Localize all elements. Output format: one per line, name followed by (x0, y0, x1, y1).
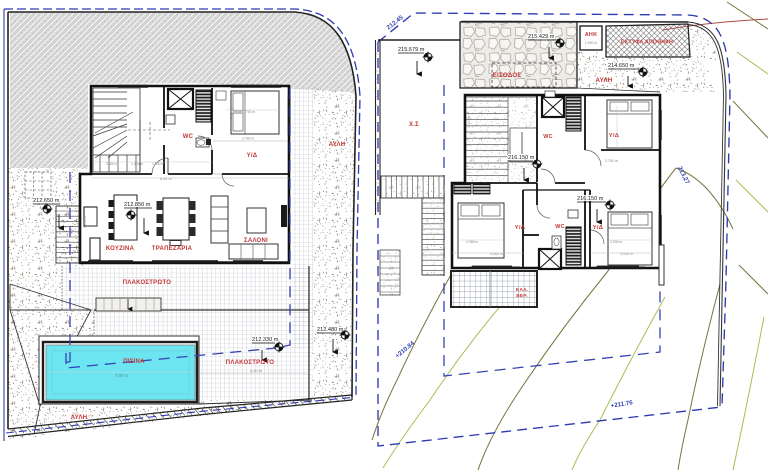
svg-text:WC: WC (183, 134, 194, 140)
svg-text:ΒΕΡ.: ΒΕΡ. (516, 293, 528, 299)
svg-text:4.150 m: 4.150 m (83, 216, 87, 228)
svg-text:213,27: 213,27 (676, 165, 691, 186)
svg-text:214.650 m: 214.650 m (608, 63, 635, 69)
svg-text:4.065 m: 4.065 m (490, 252, 503, 256)
svg-text:2.700 m: 2.700 m (243, 110, 255, 114)
svg-text:+210.84: +210.84 (394, 340, 416, 360)
svg-text:Υ/Δ: Υ/Δ (593, 225, 603, 231)
svg-text:ΑΥΛΗ: ΑΥΛΗ (71, 415, 88, 421)
svg-text:215.579 m: 215.579 m (398, 47, 425, 53)
svg-text:Υ/Δ: Υ/Δ (609, 133, 619, 139)
svg-text:ΑΥΛΗ: ΑΥΛΗ (595, 77, 612, 84)
svg-text:WC: WC (555, 224, 564, 230)
svg-text:1.000 m: 1.000 m (467, 116, 471, 128)
svg-text:1.300 m: 1.300 m (131, 162, 143, 166)
svg-text:ΠΛΑΚΟΣΤΡΩΤΟ: ΠΛΑΚΟΣΤΡΩΤΟ (226, 360, 275, 366)
svg-text:3.780 m: 3.780 m (242, 137, 254, 141)
svg-text:ΚΑΛ.: ΚΑΛ. (516, 287, 528, 293)
svg-text:212.650 m: 212.650 m (33, 198, 60, 204)
svg-text:3.45 m: 3.45 m (229, 108, 233, 120)
svg-text:8.93 m: 8.93 m (160, 177, 172, 181)
svg-text:Υ/Δ: Υ/Δ (247, 153, 258, 159)
svg-text:ΠΙΣΙΝΑ: ΠΙΣΙΝΑ (123, 359, 145, 365)
svg-text:1.900 m: 1.900 m (152, 162, 164, 166)
svg-text:212.330 m: 212.330 m (252, 337, 279, 343)
svg-text:2.700 m: 2.700 m (605, 159, 618, 163)
svg-text:7.00 m: 7.00 m (115, 373, 128, 378)
svg-text:ΣΑΛΟΝΙ: ΣΑΛΟΝΙ (244, 238, 268, 244)
svg-text:4.065 m: 4.065 m (466, 240, 478, 244)
svg-text:215.429 m: 215.429 m (528, 34, 555, 40)
svg-text:ΚΟΥΖΙΝΑ: ΚΟΥΖΙΝΑ (106, 246, 135, 252)
svg-text:+211.76: +211.76 (610, 399, 634, 409)
svg-text:ΕΙΣΟΔΟΣ: ΕΙΣΟΔΟΣ (493, 72, 522, 79)
svg-text:ΠΛΑΚΟΣΤΡΩΤΟ: ΠΛΑΚΟΣΤΡΩΤΟ (123, 280, 172, 286)
svg-text:Χ.Σ: Χ.Σ (409, 122, 419, 128)
svg-text:216.150 m: 216.150 m (577, 196, 604, 202)
svg-text:ΑΥΛΗ: ΑΥΛΗ (329, 142, 346, 148)
svg-text:ΤΡΑΠΕΖΑΡΙΑ: ΤΡΑΠΕΖΑΡΙΑ (152, 246, 193, 252)
svg-text:2.300 m: 2.300 m (106, 162, 118, 166)
svg-text:4.60 m: 4.60 m (250, 368, 263, 373)
svg-text:216.150 m: 216.150 m (508, 155, 535, 161)
svg-text:WC: WC (543, 134, 552, 140)
svg-text:3.930 m: 3.930 m (610, 240, 622, 244)
svg-text:3.930 m: 3.930 m (620, 252, 633, 256)
svg-text:Υ/Δ: Υ/Δ (515, 225, 525, 231)
svg-text:1.950 m: 1.950 m (585, 41, 597, 45)
svg-text:212.850 m: 212.850 m (124, 202, 151, 208)
svg-text:ΕΚΤΥΦΛ.ΑΠΟΘΗΚΗ: ΕΚΤΥΦΛ.ΑΠΟΘΗΚΗ (621, 40, 673, 46)
svg-text:212.480 m: 212.480 m (317, 327, 344, 333)
svg-text:ΑΗΚ: ΑΗΚ (585, 32, 597, 38)
